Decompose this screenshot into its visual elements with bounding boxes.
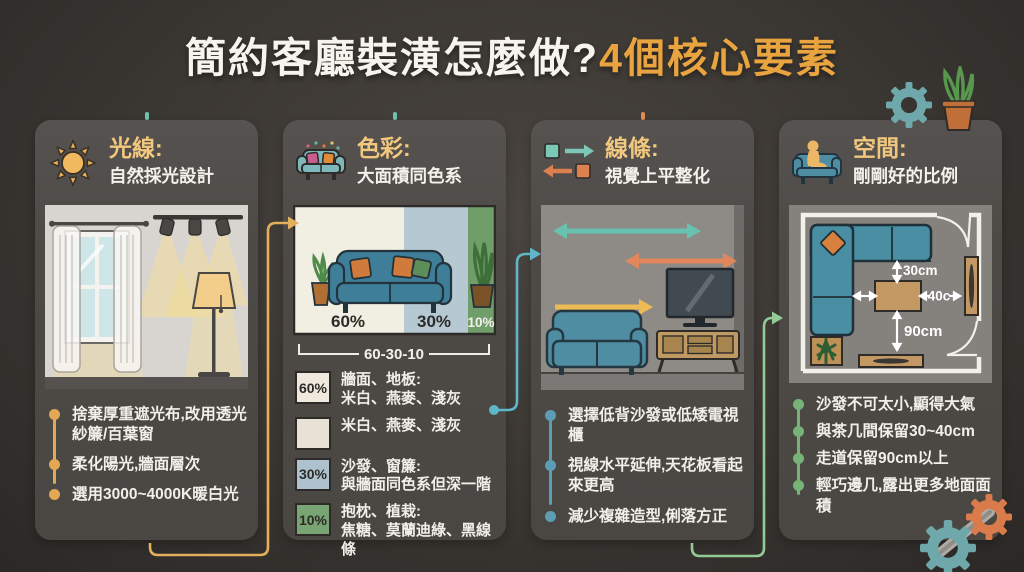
legend-label: 焦糖、莫蘭迪綠、黑線條: [341, 522, 498, 560]
color-legend: 60% 牆面、地板: 米白、燕麥、淺灰 米白、燕麥、淺灰 30% 沙發、窗簾: …: [295, 371, 498, 559]
card-color-header: 色彩: 大面積同色系: [283, 120, 506, 197]
legend-swatch-10: 10%: [295, 503, 331, 536]
squares-arrows-icon: [543, 136, 595, 188]
card-top-tick: [145, 112, 149, 120]
card-lines-title: 線條:: [605, 136, 710, 160]
legend-row: 10% 抱枕、植栽: 焦糖、莫蘭迪綠、黑線條: [295, 503, 498, 559]
sun-icon: [47, 136, 99, 188]
legend-swatch-30: 30%: [295, 458, 331, 491]
card-lines-subtitle: 視覺上平整化: [605, 163, 710, 188]
light-illustration: [45, 205, 248, 389]
bullet-item: 柔化陽光,牆面層次: [49, 455, 250, 475]
svg-text:30%: 30%: [417, 312, 451, 331]
bullet-item: 走道保留90cm以上: [793, 449, 994, 469]
card-light-title: 光線:: [109, 136, 214, 160]
sofa-illustration: [329, 251, 451, 313]
bottom-right-decor: [912, 494, 1024, 572]
legend-label: 米白、燕麥、淺灰: [341, 417, 461, 436]
bullet-item: 減少複雜造型,俐落方正: [545, 507, 746, 527]
card-top-tick: [393, 112, 397, 120]
card-space-subtitle: 剛剛好的比例: [853, 163, 958, 188]
card-top-tick: [641, 112, 645, 120]
legend-label: 牆面、地板:: [341, 371, 461, 390]
card-space: 空間: 剛剛好的比例: [779, 120, 1002, 540]
card-light: 光線: 自然採光設計: [35, 120, 258, 540]
sofa-icon: [295, 136, 347, 188]
card-color: 色彩: 大面積同色系: [283, 120, 506, 540]
bullet-item: 視線水平延伸,天花板看起來更高: [545, 456, 746, 496]
legend-label: 沙發、窗簾:: [341, 458, 491, 477]
legend-label: 抱枕、植栽:: [341, 503, 498, 522]
coffee-table-icon: [875, 281, 921, 311]
top-right-decor: [884, 66, 996, 132]
infographic-canvas: 簡約客廳裝潢怎麼做?4個核心要素: [0, 0, 1024, 572]
legend-row: 30% 沙發、窗簾: 與牆面同色系但深一階: [295, 458, 498, 496]
floorplan-illustration: 30cm 40c 90cm: [789, 205, 992, 383]
color-ratio-chart: 60% 30% 10% 60-30-10: [293, 205, 496, 363]
lines-illustration: [541, 205, 744, 390]
card-light-header: 光線: 自然採光設計: [35, 120, 258, 197]
person-sofa-icon: [791, 136, 843, 188]
bullet-item: 選擇低背沙發或低矮電視櫃: [545, 406, 746, 446]
legend-swatch-plain: [295, 417, 331, 450]
page-title-main: 簡約客廳裝潢怎麼做?: [185, 35, 599, 81]
card-lines-header: 線條: 視覺上平整化: [531, 120, 754, 197]
card-lines: 線條: 視覺上平整化: [531, 120, 754, 540]
lines-bullet-list: 選擇低背沙發或低矮電視櫃 視線水平延伸,天花板看起來更高 減少複雜造型,俐落方正: [545, 406, 746, 527]
legend-row: 米白、燕麥、淺灰: [295, 417, 498, 450]
plant-pot-icon: [942, 68, 975, 130]
legend-label: 與牆面同色系但深一階: [341, 476, 491, 495]
legend-row: 60% 牆面、地板: 米白、燕麥、淺灰: [295, 371, 498, 409]
plant-box-icon: [811, 337, 842, 365]
svg-text:30cm: 30cm: [903, 263, 938, 278]
page-title-accent: 4個核心要素: [599, 35, 839, 81]
gear-icon: [886, 82, 932, 128]
light-bullet-list: 捨棄厚重遮光布,改用透光紗簾/百葉窗 柔化陽光,牆面層次 選用3000~4000…: [49, 405, 250, 506]
svg-text:60%: 60%: [331, 312, 365, 331]
card-light-subtitle: 自然採光設計: [109, 163, 214, 188]
svg-text:60-30-10: 60-30-10: [364, 346, 424, 363]
legend-swatch-60: 60%: [295, 371, 331, 404]
svg-text:40c: 40c: [928, 289, 951, 304]
legend-label: 米白、燕麥、淺灰: [341, 390, 461, 409]
bullet-item: 捨棄厚重遮光布,改用透光紗簾/百葉窗: [49, 405, 250, 445]
page-title: 簡約客廳裝潢怎麼做?4個核心要素: [0, 24, 1024, 84]
bullet-item: 選用3000~4000K暖白光: [49, 485, 250, 505]
svg-text:10%: 10%: [467, 315, 494, 330]
card-space-title: 空間:: [853, 136, 958, 160]
card-color-subtitle: 大面積同色系: [357, 163, 462, 188]
bullet-item: 沙發不可太小,顯得大氣: [793, 395, 994, 415]
svg-text:90cm: 90cm: [904, 323, 942, 340]
bullet-item: 與茶几間保留30~40cm: [793, 422, 994, 442]
card-color-title: 色彩:: [357, 136, 462, 160]
low-sofa-icon: [547, 311, 647, 375]
